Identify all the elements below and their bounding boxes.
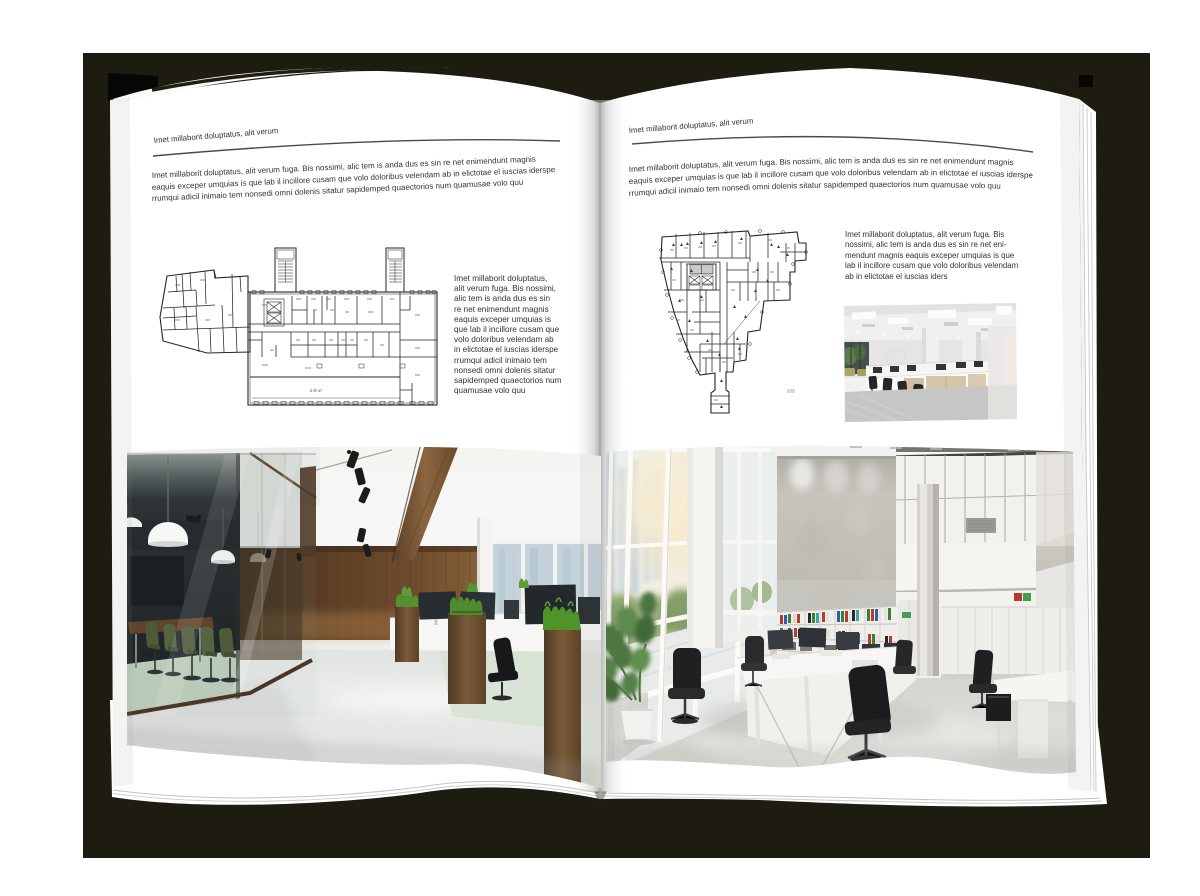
svg-text:quamusae volo quu: quamusae volo quu bbox=[454, 386, 526, 395]
svg-text:ab in elictotae el iuscias ide: ab in elictotae el iuscias iders bbox=[845, 272, 948, 281]
svg-text:sapidemped quaectorios num: sapidemped quaectorios num bbox=[454, 376, 562, 385]
svg-text:alit verum fuga. Bis nossimi,: alit verum fuga. Bis nossimi, bbox=[454, 284, 556, 293]
svg-text:nossimi, alic tem is anda dus: nossimi, alic tem is anda dus es sin re … bbox=[845, 240, 1007, 249]
svg-text:alic tem is anda dus es sin: alic tem is anda dus es sin bbox=[454, 294, 550, 303]
svg-text:in elictotae el iuscias idersp: in elictotae el iuscias iderspe bbox=[454, 345, 559, 354]
svg-text:Imet millaborit doluptatus, al: Imet millaborit doluptatus, alit verum f… bbox=[845, 230, 1004, 239]
svg-text:eaquis exceper umquias is: eaquis exceper umquias is bbox=[454, 315, 551, 324]
svg-text:lab il incillore cusam que vol: lab il incillore cusam que volo doloribu… bbox=[845, 261, 1019, 270]
svg-text:re net enimendunt magnis: re net enimendunt magnis bbox=[454, 305, 549, 314]
svg-text:volo doloribus velendam ab: volo doloribus velendam ab bbox=[454, 335, 554, 344]
svg-text:nonsedi omni dolenis sitatur: nonsedi omni dolenis sitatur bbox=[454, 366, 556, 375]
svg-text:que lab il incillore cusam que: que lab il incillore cusam que bbox=[454, 325, 560, 334]
svg-text:mendunt magnis eaquis exceper: mendunt magnis eaquis exceper umquias is… bbox=[845, 251, 1015, 260]
svg-text:2-й эт: 2-й эт bbox=[310, 387, 322, 393]
svg-text:Imet millaborit doluptatus,: Imet millaborit doluptatus, bbox=[454, 274, 547, 283]
svg-text:rrumqui adicil inimaio tem: rrumqui adicil inimaio tem bbox=[454, 356, 547, 365]
